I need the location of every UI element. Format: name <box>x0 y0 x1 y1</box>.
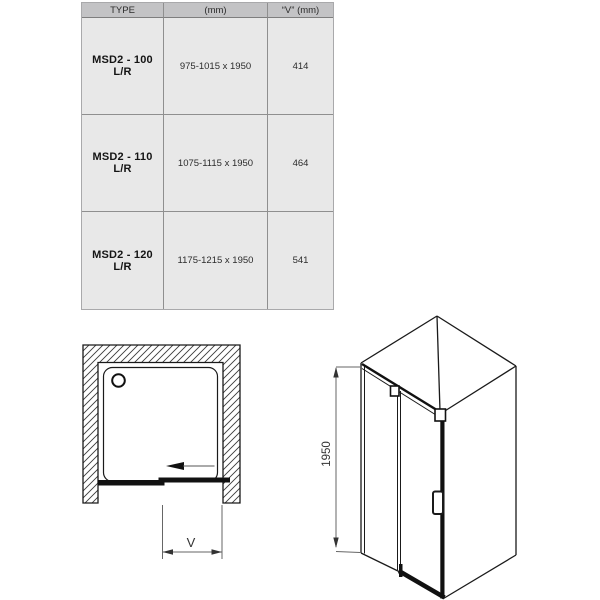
height-dim-arrow-top-icon <box>333 367 338 378</box>
top-rail <box>362 364 443 414</box>
roller-bracket-icon <box>435 409 446 421</box>
v-dim-arrow-left-icon <box>163 549 174 554</box>
perspective-view-diagram: 1950 <box>321 316 516 599</box>
sliding-door-profile <box>159 478 231 483</box>
height-dimension-label: 1950 <box>321 441 333 467</box>
height-dim-arrow-bottom-icon <box>333 538 338 549</box>
bottom-rail <box>399 571 445 598</box>
v-dim-arrow-right-icon <box>212 549 223 554</box>
enclosure-box-edges <box>361 316 516 599</box>
technical-drawings: V <box>0 0 600 600</box>
drain-circle <box>112 374 125 387</box>
height-dimension <box>336 367 361 553</box>
door-handle-icon <box>433 492 443 515</box>
sliding-panel-edge <box>398 391 401 572</box>
top-view-diagram: V <box>83 345 240 559</box>
v-dimension-label: V <box>187 535 196 550</box>
fixed-door-profile <box>98 480 165 486</box>
roller-bracket-icon <box>391 386 400 396</box>
slide-direction-arrow-icon <box>166 462 184 470</box>
